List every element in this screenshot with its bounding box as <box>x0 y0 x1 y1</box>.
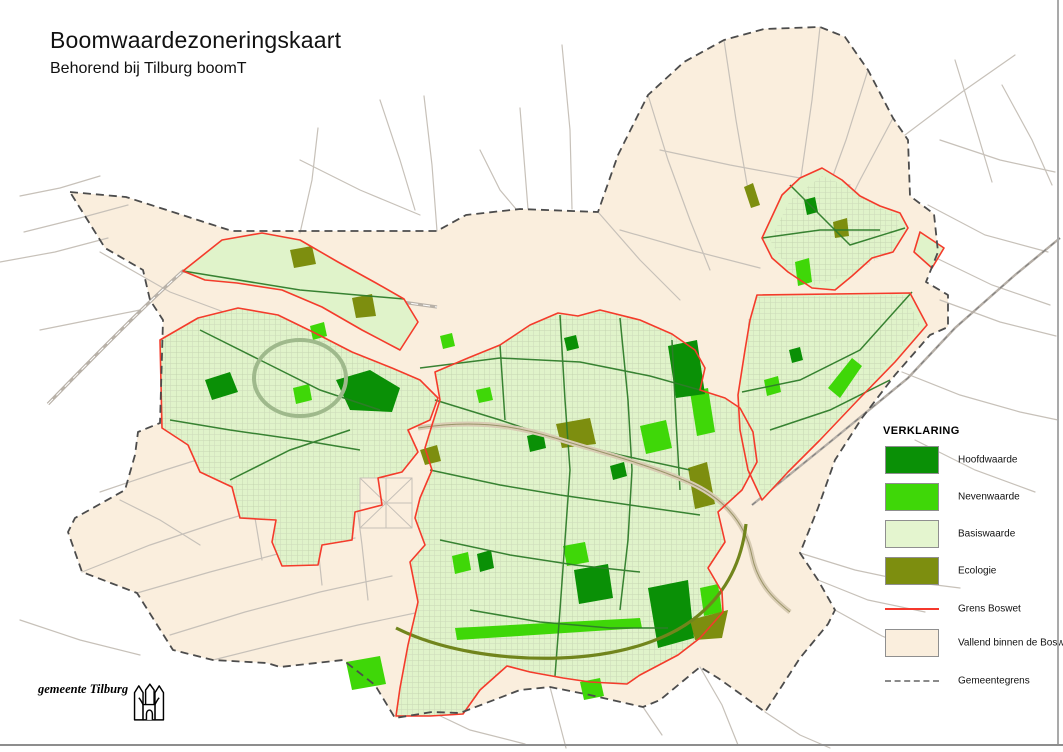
basiswaarde-swatch <box>885 520 939 548</box>
dashed-line-swatch <box>885 680 939 682</box>
legend-label: Basiswaarde <box>958 529 1015 540</box>
legend-label: Nevenwaarde <box>958 492 1020 503</box>
legend-item-hoofdwaarde: Hoofdwaarde <box>883 446 1061 474</box>
legend-item-ecologie: Ecologie <box>883 557 1061 585</box>
legend-item-vallend-binnen-boswet: Vallend binnen de Boswet <box>883 629 1061 657</box>
page-title: Boomwaardezoneringskaart <box>50 28 341 53</box>
legend-heading: VERKLARING <box>883 420 1061 437</box>
legend-item-grens-boswet: Grens Boswet <box>883 598 1061 620</box>
legend-label: Grens Boswet <box>958 604 1021 615</box>
red-line-swatch <box>885 608 939 610</box>
legend-label: Ecologie <box>958 566 996 577</box>
nevenwaarde-swatch <box>885 483 939 511</box>
page-subtitle: Behorend bij Tilburg boomT <box>50 60 341 78</box>
sheet-bottom-edge <box>0 744 1063 746</box>
attribution-text: gemeente Tilburg <box>38 682 128 697</box>
sheet-right-edge <box>1057 0 1059 745</box>
map-header: Boomwaardezoneringskaart Behorend bij Ti… <box>50 28 341 78</box>
legend-item-nevenwaarde: Nevenwaarde <box>883 483 1061 511</box>
tilburg-castle-icon <box>132 679 166 725</box>
legend-label: Gemeentegrens <box>958 676 1030 687</box>
ecologie-swatch <box>885 557 939 585</box>
legend: VERKLARING Hoofdwaarde Nevenwaarde Basis… <box>883 420 1061 701</box>
legend-item-basiswaarde: Basiswaarde <box>883 520 1061 548</box>
lattice-block <box>360 478 412 528</box>
legend-item-gemeentegrens: Gemeentegrens <box>883 670 1061 692</box>
boswet-area-swatch <box>885 629 939 657</box>
legend-label: Hoofdwaarde <box>958 455 1017 466</box>
hoofdwaarde-swatch <box>885 446 939 474</box>
legend-label: Vallend binnen de Boswet <box>958 638 1063 649</box>
